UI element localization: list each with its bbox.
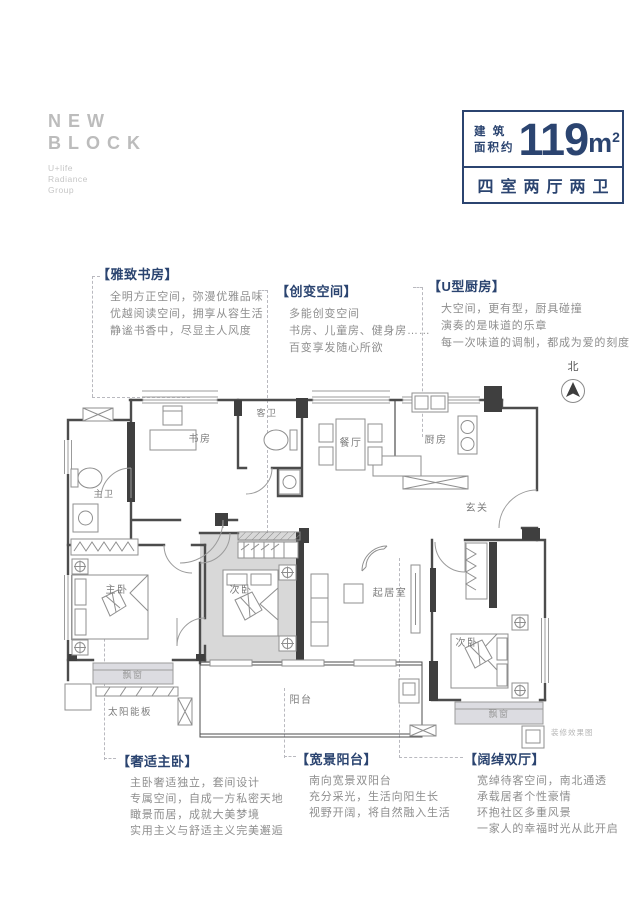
callout-master-bedroom-body: 主卧奢适独立，套间设计 专属空间，自成一方私密天地 瞰景而居，成就大美梦境 实用… — [130, 775, 283, 839]
stove-icon — [458, 416, 477, 454]
area-unit: m2 — [588, 122, 620, 158]
callout-flex-space-body: 多能创变空间 书房、儿童房、健身房…… 百变享发随心所欲 — [289, 306, 431, 357]
bed2-bed-icon — [223, 570, 278, 636]
brand-logo: NEW BLOCK U+life Radiance Group — [48, 110, 147, 196]
callout-balcony: 【宽景阳台】 南向宽景双阳台 充分采光，生活向阳生长 视野开阔，将自然融入生活 — [296, 749, 451, 821]
callout-double-hall: 【阔绰双厅】 宽绰待客空间，南北通透 承载居者个性豪情 环抱社区多重风景 一家人… — [464, 749, 619, 837]
master-wardrobe-icon — [71, 539, 138, 555]
callout-kitchen-title: 【U型厨房】 — [428, 276, 630, 295]
ac-ledge-icon — [178, 698, 192, 725]
label-study: 书房 — [189, 432, 212, 445]
bed2-wall-hatch — [238, 532, 300, 540]
bed3-wardrobe-icon — [466, 543, 487, 599]
callout-master-bedroom: 【奢适主卧】 主卧奢适独立，套间设计 专属空间，自成一方私密天地 瞰景而居，成就… — [117, 751, 283, 839]
leader-hall-h — [399, 757, 463, 758]
floorplan-poster: NEW BLOCK U+life Radiance Group 建 筑 面积约 … — [0, 0, 640, 920]
callout-master-bedroom-title: 【奢适主卧】 — [117, 751, 283, 770]
logo-line-1: NEW — [48, 110, 147, 132]
sliding-panel — [210, 660, 252, 666]
bed2-nightstand-icon — [279, 565, 296, 580]
callout-balcony-body: 南向宽景双阳台 充分采光，生活向阳生长 视野开阔，将自然融入生活 — [309, 773, 451, 821]
layout-label: 四室两厅两卫 — [464, 166, 622, 202]
solar-panel-icon — [96, 687, 178, 696]
tv-bench-icon — [411, 565, 420, 633]
leader-masterbed-stub — [104, 758, 116, 759]
master-nightstand-icon — [72, 640, 88, 655]
callout-study-body: 全明方正空间，弥漫优雅品味 优越阅读空间，拥享从容生活 静谧书香中，尽显主人风度 — [110, 289, 263, 340]
label-master-bed: 主卧 — [106, 583, 129, 596]
area-label: 建 筑 面积约 — [474, 124, 515, 156]
callout-double-hall-body: 宽绰待客空间，南北通透 承载居者个性豪情 环抱社区多重风景 一家人的幸福时光从此… — [477, 773, 619, 837]
label-foyer: 玄关 — [466, 501, 489, 514]
bed3-nightstand-icon — [512, 615, 528, 630]
side-table-icon — [344, 584, 363, 603]
label-master-bath: 主卫 — [93, 488, 114, 499]
label-guest-bath: 客卫 — [256, 407, 277, 418]
logo-line-2: BLOCK — [48, 132, 147, 154]
shaft-icon — [83, 408, 113, 421]
compass-north-label: 北 — [568, 360, 579, 373]
area-number: 119 — [519, 119, 589, 161]
callout-kitchen-body: 大空间，更有型，厨具碰撞 演奏的是味道的乐章 每一次味道的调制，都成为爱的刻度 — [441, 301, 630, 352]
master-nightstand-icon — [72, 559, 88, 574]
sliding-panel — [354, 660, 396, 666]
callout-study-title: 【雅致书房】 — [97, 264, 263, 283]
bed2-nightstand-icon — [279, 636, 296, 651]
callout-flex-space: 【创变空间】 多能创变空间 书房、儿童房、健身房…… 百变享发随心所欲 — [276, 281, 431, 357]
callout-flex-space-title: 【创变空间】 — [276, 281, 431, 300]
logo-subtitle: U+life Radiance Group — [48, 163, 147, 196]
sofa-icon — [311, 574, 328, 646]
bed3-nightstand-icon — [512, 683, 528, 698]
label-bed3: 次卧 — [456, 636, 479, 649]
master-toilet-icon — [71, 468, 102, 488]
sliding-panel — [282, 660, 324, 666]
leader-study-stub — [92, 276, 100, 277]
label-kitchen: 厨房 — [425, 433, 448, 446]
armchair-icon — [362, 546, 387, 571]
label-bay1: 飘窗 — [122, 669, 143, 680]
render-note: 装修效果图 — [551, 727, 594, 738]
label-bed2: 次卧 — [230, 583, 253, 596]
area-badge-top: 建 筑 面积约 119 m2 — [464, 112, 622, 166]
master-sink-icon — [73, 504, 98, 532]
ac-ledge-icon — [410, 725, 436, 736]
leader-balcony-stub — [284, 756, 296, 757]
ledge-box — [522, 726, 544, 748]
kitchen-sink-icon — [412, 393, 448, 412]
bed2-wardrobe-icon — [238, 542, 298, 558]
label-balcony: 阳台 — [290, 693, 313, 706]
callout-kitchen: 【U型厨房】 大空间，更有型，厨具碰撞 演奏的是味道的乐章 每一次味道的调制，都… — [428, 276, 630, 352]
floor-plan: 书房 客卫 餐厅 厨房 主卫 玄关 主卧 次卧 起居室 次卧 飘窗 飘窗 阳台 … — [60, 378, 605, 752]
callout-study: 【雅致书房】 全明方正空间，弥漫优雅品味 优越阅读空间，拥享从容生活 静谧书香中… — [97, 264, 263, 340]
washer-icon — [399, 679, 419, 703]
label-solar: 太阳能板 — [108, 706, 152, 718]
label-bay2: 飘窗 — [488, 708, 509, 719]
guest-sink-icon — [279, 470, 300, 494]
guest-toilet-icon — [264, 430, 297, 450]
area-badge: 建 筑 面积约 119 m2 四室两厅两卫 — [462, 110, 624, 204]
label-living: 起居室 — [373, 586, 408, 599]
ledge-box — [65, 684, 91, 710]
label-dining: 餐厅 — [340, 436, 363, 449]
shoe-cabinet-icon — [403, 476, 468, 489]
